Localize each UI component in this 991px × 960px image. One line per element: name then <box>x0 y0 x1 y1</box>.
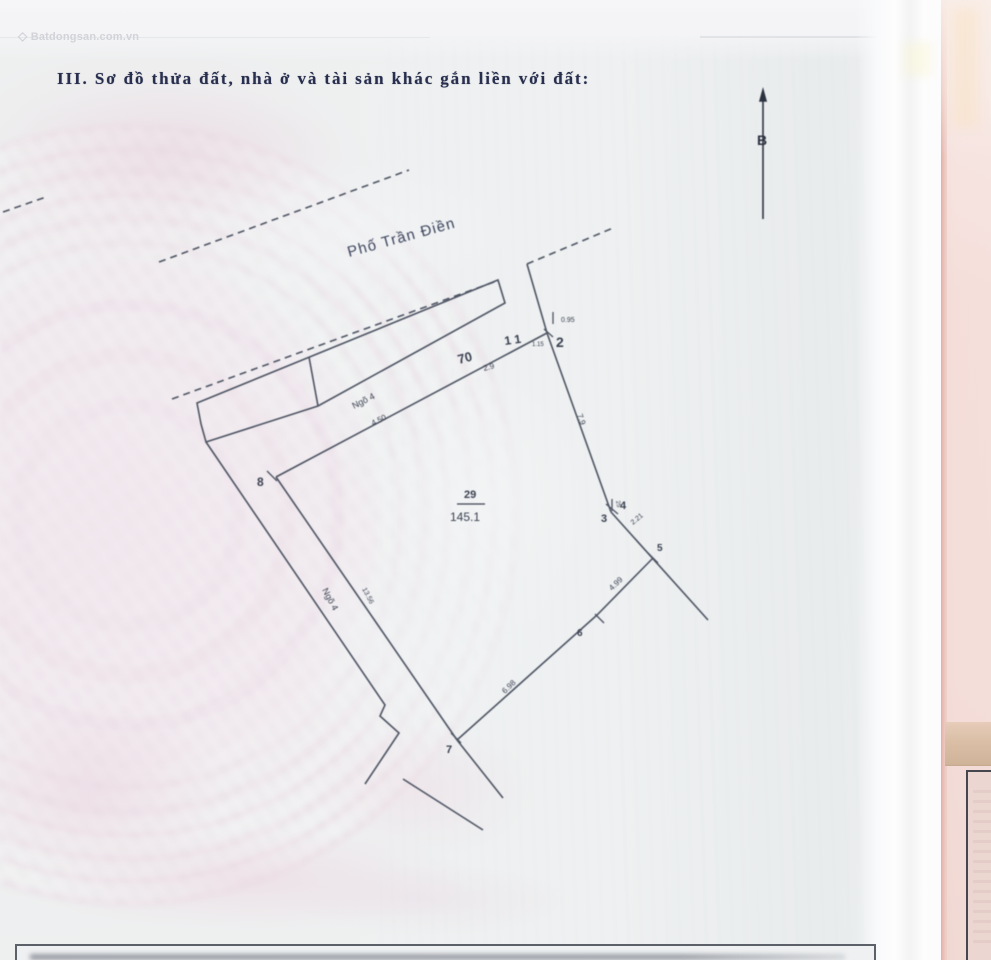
svg-text:7.9: 7.9 <box>575 413 587 427</box>
svg-text:1.15: 1.15 <box>532 342 544 348</box>
svg-text:3: 3 <box>601 513 607 525</box>
svg-text:Ngõ 4: Ngõ 4 <box>350 391 376 411</box>
svg-text:70: 70 <box>456 349 474 367</box>
svg-text:1 1: 1 1 <box>503 332 522 348</box>
svg-text:5: 5 <box>657 543 663 554</box>
svg-text:Ngõ 4: Ngõ 4 <box>320 586 340 612</box>
svg-text:B: B <box>757 132 767 148</box>
svg-text:0.95: 0.95 <box>561 317 575 324</box>
svg-text:6.98: 6.98 <box>500 678 518 696</box>
svg-text:7: 7 <box>446 744 452 756</box>
svg-text:29: 29 <box>464 489 476 501</box>
svg-text:6: 6 <box>577 628 583 639</box>
svg-text:4.50: 4.50 <box>370 412 388 427</box>
svg-text:8: 8 <box>257 475 264 489</box>
svg-text:Phố Trần Điền: Phố Trần Điền <box>346 215 458 261</box>
svg-text:2.21: 2.21 <box>630 512 645 526</box>
svg-text:2: 2 <box>556 334 564 350</box>
svg-text:145.1: 145.1 <box>450 510 480 524</box>
svg-text:2.9: 2.9 <box>482 361 496 373</box>
